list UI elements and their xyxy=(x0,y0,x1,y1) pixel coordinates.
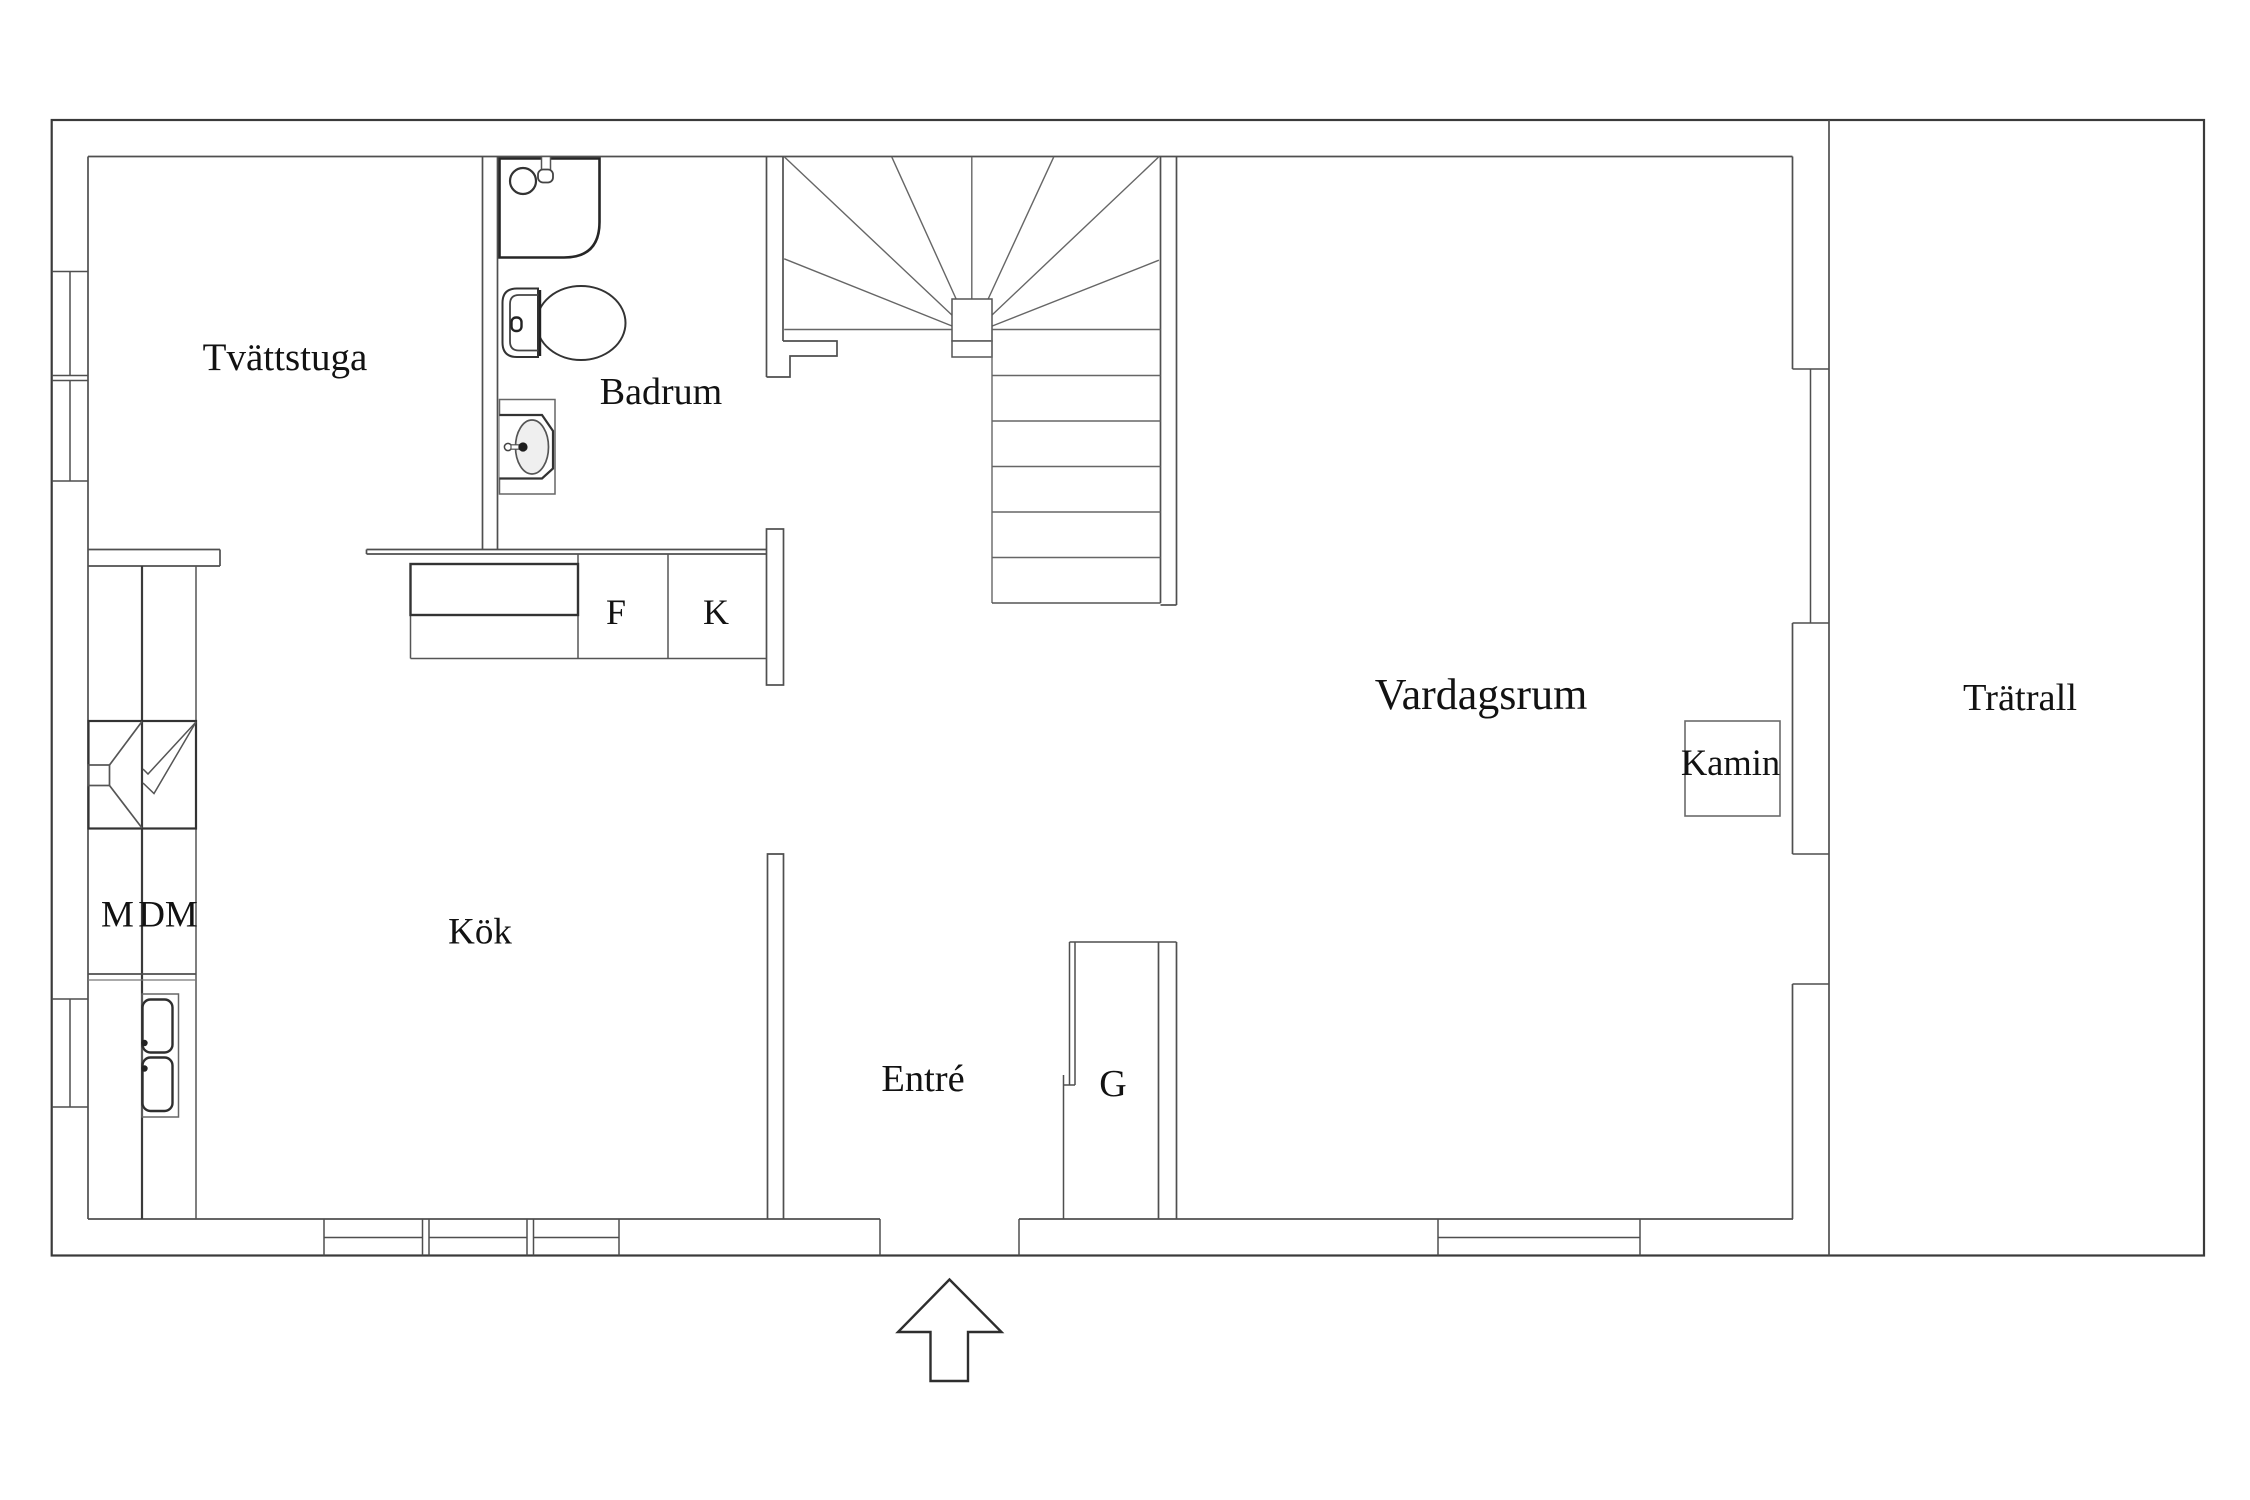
svg-text:Badrum: Badrum xyxy=(600,371,722,413)
svg-text:G: G xyxy=(1099,1063,1126,1105)
svg-text:Kök: Kök xyxy=(448,912,512,953)
svg-text:Tvättstuga: Tvättstuga xyxy=(203,336,368,379)
svg-text:Kamin: Kamin xyxy=(1681,742,1780,783)
svg-text:F: F xyxy=(606,592,626,632)
svg-text:Vardagsrum: Vardagsrum xyxy=(1375,670,1588,719)
svg-text:DM: DM xyxy=(138,895,198,936)
svg-text:K: K xyxy=(703,592,729,632)
svg-text:Entré: Entré xyxy=(881,1058,964,1100)
svg-text:Trätrall: Trätrall xyxy=(1963,677,2077,719)
svg-text:M: M xyxy=(101,895,134,936)
